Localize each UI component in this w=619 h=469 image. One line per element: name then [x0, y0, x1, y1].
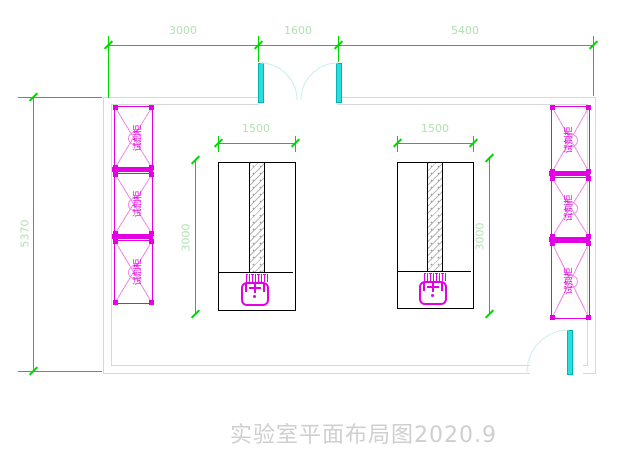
sink-symbol [241, 282, 269, 306]
cabinet-label: 试剂柜 [561, 267, 574, 294]
bench-divider [398, 271, 471, 272]
cabinet-divider [112, 234, 153, 239]
reagent-cabinet: 试剂柜 [551, 177, 590, 238]
lab-bench-left [218, 162, 296, 311]
dim-bench2-depth: 3000 [474, 217, 487, 257]
cabinet-divider [549, 171, 590, 176]
bench-divider [219, 272, 293, 273]
sink-grille [246, 274, 268, 282]
dim-ext [258, 36, 259, 62]
bench-center-hatch [249, 163, 265, 272]
cabinet-label: 试剂柜 [561, 194, 574, 221]
bench-center-hatch [427, 163, 443, 271]
dim-ext [338, 36, 339, 62]
door-leaf-top-left [258, 63, 264, 103]
dim-top-right: 5400 [435, 24, 495, 37]
cabinet-label: 试剂柜 [561, 126, 574, 153]
reagent-cabinet: 试剂柜 [551, 106, 590, 173]
dim-line-bench1-width [218, 143, 295, 144]
cabinet-label: 试剂柜 [131, 258, 144, 285]
dim-bench1-width: 1500 [236, 122, 276, 135]
dim-top-middle: 1600 [268, 24, 328, 37]
dim-bench1-depth: 3000 [180, 218, 193, 258]
door-leaf-top-right [336, 63, 342, 103]
sink-symbol [419, 281, 447, 305]
door-opening-top [259, 94, 337, 107]
dim-top-left: 3000 [153, 24, 213, 37]
reagent-cabinet: 试剂柜 [551, 242, 590, 319]
dim-line-bench2-width [397, 143, 473, 144]
reagent-cabinet: 试剂柜 [114, 106, 153, 169]
drawing-title: 实验室平面布局图2020.9 [230, 417, 497, 449]
dim-overall-height: 5370 [19, 212, 32, 256]
dim-line-bench2-depth [489, 158, 490, 314]
door-leaf-bottom [567, 330, 573, 375]
dim-line-top [108, 45, 593, 46]
dim-line-left [33, 97, 34, 371]
reagent-cabinet: 试剂柜 [114, 240, 153, 304]
cabinet-divider [112, 167, 153, 172]
reagent-cabinet: 试剂柜 [114, 173, 153, 235]
floorplan-canvas[interactable]: 试剂柜 试剂柜 试剂柜 试剂柜 试剂柜 试剂柜 [0, 0, 619, 469]
lab-bench-right [397, 162, 474, 309]
door-opening-bottom [530, 359, 583, 376]
sink-grille [424, 273, 446, 281]
dim-line-bench1-depth [195, 160, 196, 314]
dim-bench2-width: 1500 [415, 122, 455, 135]
cabinet-label: 试剂柜 [131, 124, 144, 151]
cabinet-label: 试剂柜 [131, 190, 144, 217]
